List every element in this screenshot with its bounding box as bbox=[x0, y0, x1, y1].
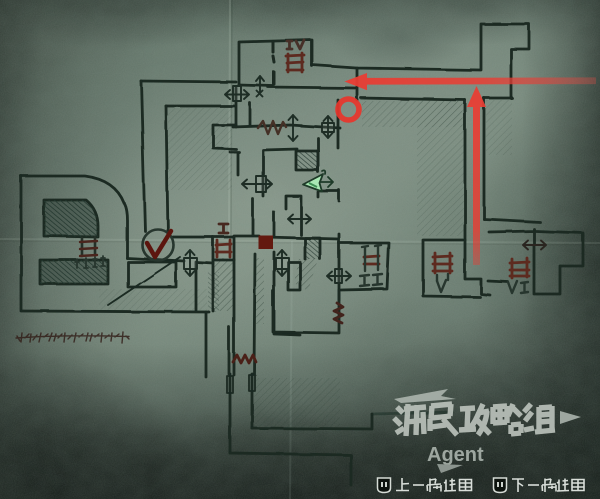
svg-text:Agent: Agent bbox=[427, 444, 484, 466]
